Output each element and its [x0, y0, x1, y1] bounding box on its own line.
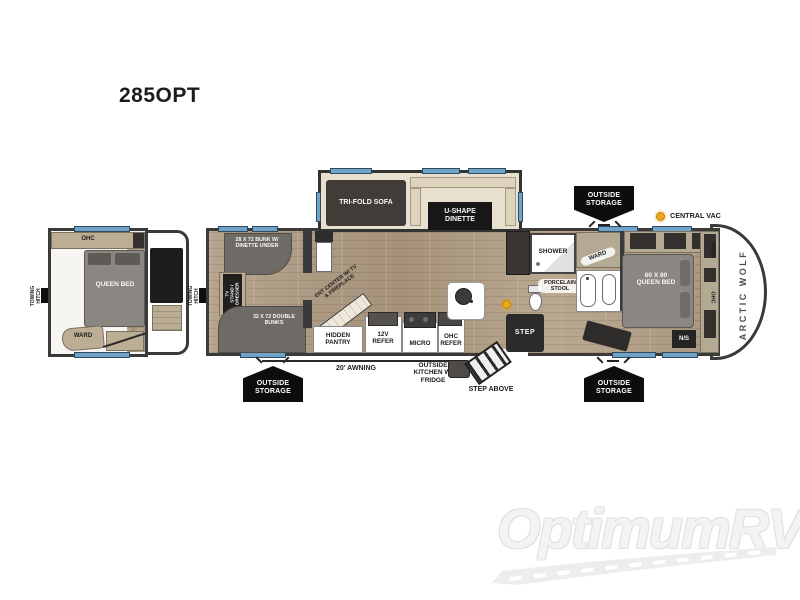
window-bedroom-bottom-2	[662, 352, 698, 358]
inset-cap-shelf	[152, 305, 182, 331]
queen-bed-label: 60 X 80 QUEEN BED	[634, 272, 678, 287]
tv-stand-label: TV STAND / DRESSER	[225, 283, 240, 305]
night-stand: N/S	[672, 330, 696, 348]
micro-label: MICRO	[402, 340, 438, 347]
bath-linen-cabinet	[506, 231, 530, 275]
step-box: STEP	[506, 314, 544, 352]
step-label: STEP	[515, 329, 535, 337]
outside-storage-label-top: OUTSIDE STORAGE	[582, 192, 626, 208]
entry-cabinet-dark	[315, 231, 333, 242]
slideout-window-left	[316, 192, 321, 222]
window-bunk-top-1	[218, 226, 248, 232]
bed-pillow-1	[680, 260, 690, 286]
slideout-window-1	[330, 168, 372, 174]
shower-drain-dot	[536, 262, 540, 266]
u-shape-dinette-label-box: U-SHAPE DINETTE	[428, 202, 492, 230]
dinette-bench-top	[410, 177, 516, 188]
double-bunks-label: 32 X 72 DOUBLE BUNKS	[252, 315, 296, 327]
brand-label: ARCTIC WOLF	[738, 250, 748, 341]
island-faucet-dot	[470, 300, 473, 303]
inset-pillow-left	[88, 253, 111, 265]
watermark-road-icon	[488, 543, 780, 589]
outside-storage-label-right: OUTSIDE STORAGE	[592, 380, 636, 396]
refer-12v-top	[368, 312, 398, 326]
vanity-sink-2	[602, 274, 616, 305]
bed-pillow-2	[680, 292, 690, 318]
bedroom-right-cabinet-3	[704, 310, 716, 338]
badge-top-mark-c	[598, 224, 610, 226]
dinette-bench-right	[505, 188, 516, 226]
slideout-window-2	[422, 168, 460, 174]
inset-window-bottom	[74, 352, 130, 358]
dinette-bench-left	[410, 188, 421, 226]
bunk-room-wall-top	[303, 231, 312, 273]
window-bunk-top-2	[252, 226, 278, 232]
outside-storage-badge-left: OUTSIDE STORAGE	[243, 366, 303, 402]
bedroom-cabinet-2	[664, 233, 686, 249]
bedroom-ohc-label: OHC	[707, 282, 716, 314]
outside-storage-label-left: OUTSIDE STORAGE	[251, 380, 295, 396]
badge-right-mark-c	[607, 360, 619, 362]
central-vac-label: CENTRAL VAC	[670, 212, 750, 220]
entry-cabinet-white	[316, 242, 332, 272]
central-vac-icon	[656, 212, 665, 221]
inset-ohc-label: OHC	[76, 236, 100, 243]
cooktop-burner-1	[409, 317, 414, 322]
inset-ward-label: WARD	[66, 333, 100, 340]
vanity-faucet-dot	[586, 277, 589, 280]
refer-12v-label: 12V REFER	[366, 331, 400, 345]
bunk-dinette-label: 28 X 72 BUNK W/ DINETTE UNDER	[228, 238, 286, 250]
hidden-pantry-label: HIDDEN PANTRY	[316, 332, 360, 346]
outside-storage-badge-right: OUTSIDE STORAGE	[584, 366, 644, 402]
ohc-refer-label: OHC REFER	[435, 333, 467, 347]
bedroom-ward-label: WARD	[707, 230, 716, 270]
outside-storage-badge-top: OUTSIDE STORAGE	[574, 186, 634, 222]
bedroom-right-cabinet-2	[704, 268, 716, 282]
night-stand-label: N/S	[679, 336, 689, 343]
shower-label: SHOWER	[533, 248, 573, 255]
bunk-room-wall-bottom	[303, 300, 312, 328]
floorplan-page: 285OPT TOWING HITCH OHC QUEEN BED WARD T…	[0, 0, 800, 600]
inset-pillow-right	[115, 253, 140, 265]
step-above-label: STEP ABOVE	[460, 386, 522, 394]
tri-fold-sofa-label: TRI-FOLD SOFA	[339, 199, 393, 207]
brand-text: ARCTIC WOLF	[733, 240, 745, 350]
inset-queen-bed-label: QUEEN BED	[92, 281, 138, 288]
awning-label: 20' AWNING	[324, 365, 388, 373]
u-shape-dinette-label: U-SHAPE DINETTE	[437, 208, 483, 224]
bedroom-cabinet-1	[630, 233, 656, 249]
slideout-window-3	[468, 168, 506, 174]
page-title: 285OPT	[119, 84, 239, 108]
badge-right-mark-l	[596, 356, 603, 363]
tri-fold-sofa: TRI-FOLD SOFA	[326, 180, 406, 226]
inset-ohc-end	[133, 233, 144, 248]
central-vac-floor-icon	[502, 300, 511, 309]
slideout-window-right	[518, 192, 523, 222]
window-bedroom-bottom-1	[612, 352, 656, 358]
badge-top-mark-l	[588, 220, 595, 227]
inset-tv-unit	[150, 248, 183, 303]
cooktop-burner-2	[423, 317, 428, 322]
